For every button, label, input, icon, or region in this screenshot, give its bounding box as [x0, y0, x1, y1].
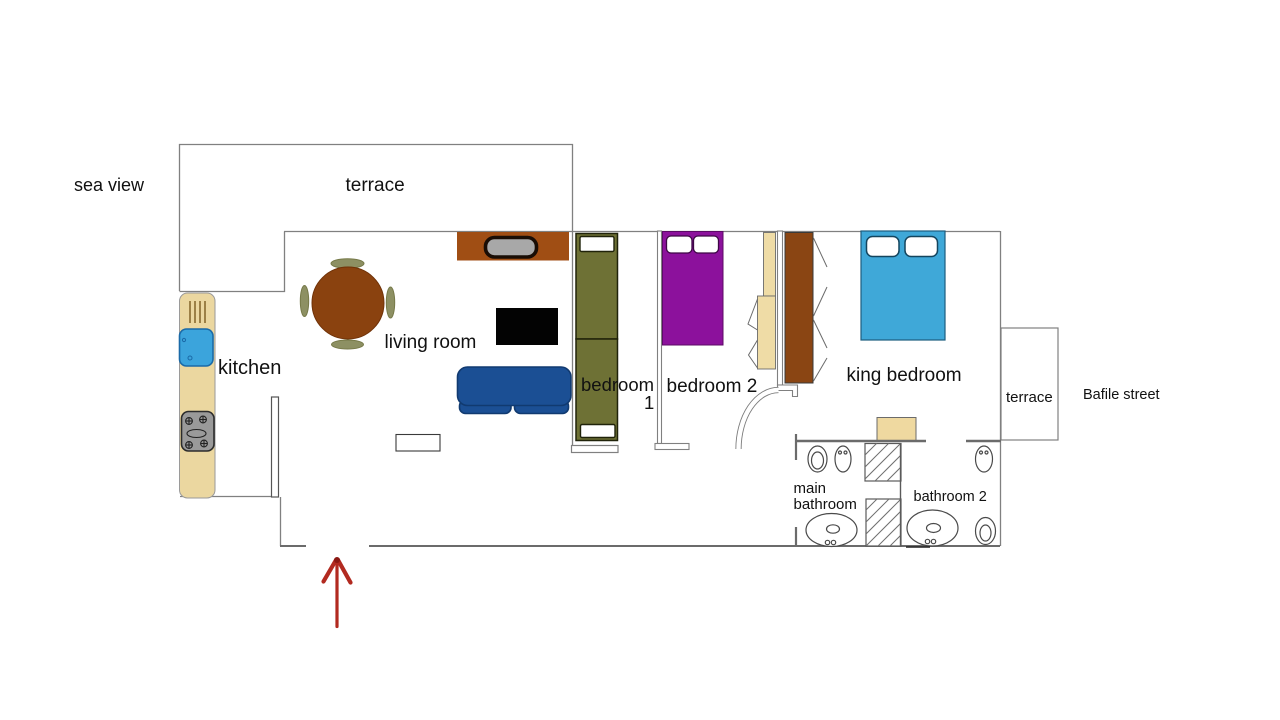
svg-text:terrace: terrace	[346, 175, 405, 196]
svg-text:Bafile street: Bafile street	[1083, 387, 1160, 403]
svg-text:kitchen: kitchen	[218, 357, 281, 379]
svg-text:bathroom 2: bathroom 2	[914, 489, 987, 505]
svg-text:1: 1	[644, 392, 654, 413]
svg-text:main: main	[794, 480, 827, 497]
svg-text:living room: living room	[385, 332, 477, 353]
svg-text:bedroom 2: bedroom 2	[667, 376, 758, 397]
svg-text:bathroom: bathroom	[794, 496, 857, 513]
svg-text:king bedroom: king bedroom	[847, 365, 962, 386]
svg-text:sea view: sea view	[74, 175, 145, 195]
svg-text:terrace: terrace	[1006, 389, 1053, 406]
